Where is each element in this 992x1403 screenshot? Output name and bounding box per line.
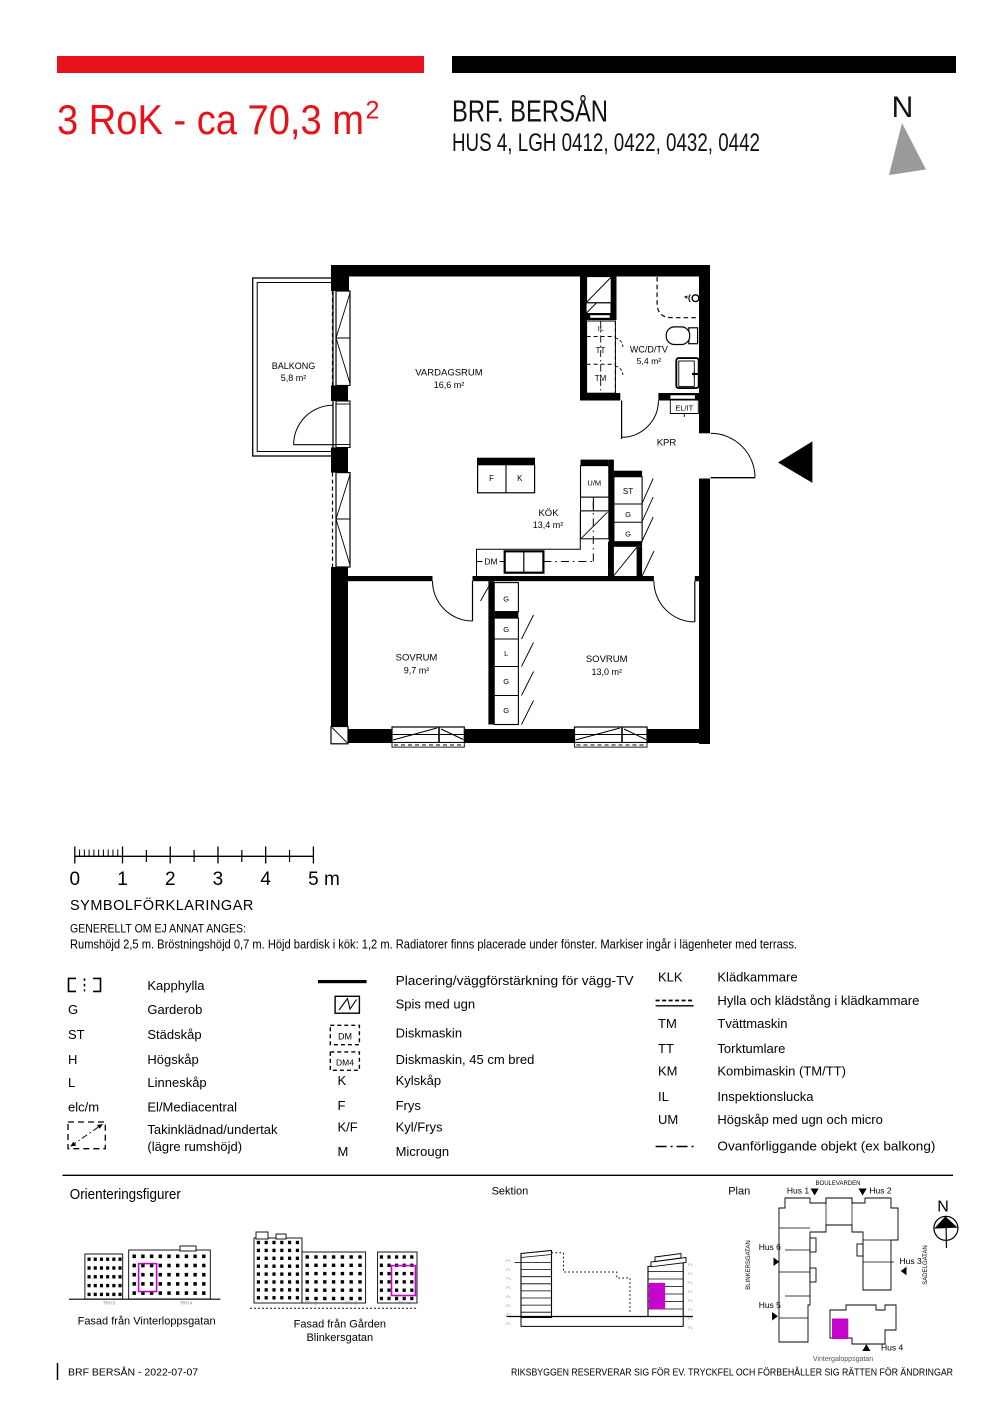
svg-text:ST: ST [623, 487, 633, 496]
svg-text:BOULEVARDEN: BOULEVARDEN [816, 1181, 861, 1187]
svg-text:IL: IL [658, 1089, 669, 1104]
svg-text:PL.: PL. [688, 1307, 694, 1312]
svg-text:PL.: PL. [688, 1289, 694, 1294]
svg-text:KÖK: KÖK [538, 508, 559, 519]
svg-text:m: m [324, 869, 340, 890]
svg-text:4: 4 [260, 869, 271, 890]
svg-text:L: L [68, 1075, 75, 1090]
svg-text:Inspektionslucka: Inspektionslucka [717, 1089, 814, 1104]
svg-text:KLK: KLK [658, 969, 683, 984]
svg-text:Diskmaskin, 45 cm bred: Diskmaskin, 45 cm bred [396, 1052, 535, 1067]
svg-text:TRH 4: TRH 4 [180, 1301, 193, 1306]
svg-text:Placering/väggförstärkning för: Placering/väggförstärkning för vägg-TV [396, 973, 634, 988]
svg-text:El/Mediacentral: El/Mediacentral [147, 1099, 237, 1114]
svg-text:Klädkammare: Klädkammare [717, 969, 797, 984]
svg-text:Microugn: Microugn [396, 1144, 449, 1159]
svg-text:ST: ST [68, 1027, 85, 1042]
svg-text:U/M: U/M [587, 479, 601, 488]
svg-text:Hus 4: Hus 4 [881, 1343, 903, 1353]
svg-text:N: N [892, 91, 914, 124]
svg-text:TRH 5: TRH 5 [103, 1301, 116, 1306]
svg-text:PL.: PL. [688, 1325, 694, 1330]
svg-text:Högskåp: Högskåp [147, 1052, 198, 1067]
svg-text:PL.: PL. [506, 1303, 512, 1308]
svg-text:TT: TT [596, 346, 606, 355]
svg-text:H: H [68, 1052, 77, 1067]
svg-text:Torktumlare: Torktumlare [717, 1041, 785, 1056]
svg-text:TM: TM [595, 374, 607, 383]
svg-text:G: G [503, 677, 509, 686]
svg-text:Linneskåp: Linneskåp [147, 1075, 206, 1090]
svg-text:EL/IT: EL/IT [675, 404, 693, 413]
svg-text:UM: UM [658, 1112, 678, 1127]
svg-text:Kapphylla: Kapphylla [147, 978, 205, 993]
svg-text:PL.: PL. [688, 1280, 694, 1285]
svg-text:Tvättmaskin: Tvättmaskin [717, 1016, 787, 1031]
svg-text:DM: DM [484, 557, 497, 567]
svg-text:Hus 2: Hus 2 [869, 1186, 891, 1196]
svg-text:2: 2 [165, 869, 176, 890]
svg-text:BRF BERSÅN - 2022-07-07: BRF BERSÅN - 2022-07-07 [68, 1366, 198, 1379]
svg-text:GENERELLT OM EJ ANNAT ANGES:: GENERELLT OM EJ ANNAT ANGES: [70, 922, 246, 936]
svg-text:Diskmaskin: Diskmaskin [396, 1025, 462, 1040]
svg-text:Ovanförliggande objekt (ex ba: Ovanförliggande objekt (ex balkong) [717, 1139, 935, 1154]
svg-text:PL.: PL. [506, 1276, 512, 1281]
svg-text:PL.: PL. [506, 1285, 512, 1290]
svg-text:DM4: DM4 [336, 1058, 354, 1068]
svg-text:N: N [937, 1199, 949, 1216]
svg-text:G: G [625, 530, 631, 539]
svg-text:elc/m: elc/m [68, 1099, 99, 1114]
svg-text:Vintergaloppsgatan: Vintergaloppsgatan [813, 1356, 873, 1363]
svg-text:1: 1 [117, 869, 128, 890]
svg-text:Hus 5: Hus 5 [759, 1300, 781, 1310]
svg-text:K/F: K/F [338, 1120, 358, 1135]
svg-text:SADELGATAN: SADELGATAN [923, 1245, 929, 1284]
svg-text:16,6 m²: 16,6 m² [434, 380, 465, 390]
svg-text:13,0 m²: 13,0 m² [591, 667, 622, 677]
svg-text:Plan: Plan [728, 1186, 750, 1198]
svg-text:BRF. BERSÅN: BRF. BERSÅN [452, 94, 608, 129]
svg-text:TRH 3: TRH 3 [345, 1301, 358, 1306]
svg-text:KPR: KPR [657, 438, 677, 449]
svg-text:PL.: PL. [506, 1294, 512, 1299]
svg-text:TRH 2: TRH 2 [305, 1301, 318, 1306]
svg-text:HUS 4, LGH 0412, 0422, 0432, 0: HUS 4, LGH 0412, 0422, 0432, 0442 [452, 129, 760, 157]
svg-text:PL.: PL. [506, 1258, 512, 1263]
svg-text:PL.: PL. [506, 1321, 512, 1326]
svg-text:Hus 3: Hus 3 [899, 1256, 921, 1266]
svg-text:5: 5 [308, 869, 319, 890]
svg-text:KM: KM [658, 1064, 678, 1079]
svg-text:TT: TT [658, 1041, 674, 1056]
svg-text:WC/D/TV: WC/D/TV [630, 345, 668, 355]
svg-text:TM: TM [658, 1016, 677, 1031]
svg-text:Fasad från Gården: Fasad från Gården [294, 1319, 386, 1331]
svg-text:Städskåp: Städskåp [147, 1027, 201, 1042]
svg-text:5,4 m²: 5,4 m² [637, 356, 662, 366]
svg-text:PL.: PL. [688, 1298, 694, 1303]
svg-text:Kyl/Frys: Kyl/Frys [396, 1120, 443, 1135]
svg-text:Högskåp med ugn och micro: Högskåp med ugn och micro [717, 1112, 882, 1127]
svg-text:G: G [503, 595, 509, 604]
svg-text:Blinkersgatan: Blinkersgatan [306, 1332, 373, 1344]
svg-text:5,8 m²: 5,8 m² [281, 373, 307, 383]
svg-text:Takinklädnad/undertak: Takinklädnad/undertak [147, 1122, 278, 1137]
svg-text:PL.: PL. [688, 1271, 694, 1276]
svg-text:Kombimaskin (TM/TT): Kombimaskin (TM/TT) [717, 1064, 846, 1079]
svg-text:BALKONG: BALKONG [272, 361, 316, 371]
svg-text:IL: IL [598, 324, 604, 333]
svg-text:Sektion: Sektion [492, 1186, 529, 1198]
svg-text:13,4 m²: 13,4 m² [533, 520, 564, 530]
svg-text:F: F [338, 1098, 346, 1113]
svg-text:3: 3 [213, 869, 224, 890]
svg-text:Frys: Frys [396, 1098, 422, 1113]
svg-text:PL.: PL. [688, 1262, 694, 1267]
svg-text:Hylla och klädstång i klädkamm: Hylla och klädstång i klädkammare [717, 993, 919, 1008]
svg-text:L: L [504, 649, 508, 658]
svg-text:VARDAGSRUM: VARDAGSRUM [415, 368, 482, 379]
svg-text:Kylskåp: Kylskåp [396, 1073, 442, 1088]
svg-text:TRH 4: TRH 4 [398, 1301, 411, 1306]
svg-text:PL.: PL. [506, 1312, 512, 1317]
svg-text:Spis med ugn: Spis med ugn [396, 996, 476, 1011]
svg-text:G: G [625, 510, 631, 519]
svg-text:Garderob: Garderob [147, 1002, 202, 1017]
svg-text:BLINKERSGATAN: BLINKERSGATAN [746, 1240, 752, 1289]
svg-text:SYMBOLFÖRKLARINGAR: SYMBOLFÖRKLARINGAR [70, 896, 254, 914]
svg-text:K: K [338, 1073, 347, 1088]
svg-text:Orienteringsfigurer: Orienteringsfigurer [70, 1187, 181, 1203]
svg-text:9,7 m²: 9,7 m² [404, 666, 430, 676]
svg-text:2: 2 [366, 97, 380, 125]
svg-text:PL.: PL. [506, 1267, 512, 1272]
svg-text:Fasad från Vinterloppsgatan: Fasad från Vinterloppsgatan [78, 1316, 216, 1328]
svg-text:Hus 6: Hus 6 [759, 1242, 781, 1252]
svg-text:SOVRUM: SOVRUM [396, 653, 438, 664]
svg-text:Hus 1: Hus 1 [787, 1186, 809, 1196]
svg-text:3 RoK - ca 70,3 m: 3 RoK - ca 70,3 m [57, 96, 364, 143]
svg-text:F: F [489, 474, 494, 483]
svg-text:RIKSBYGGEN RESERVERAR SIG FÖR: RIKSBYGGEN RESERVERAR SIG FÖR EV. TRYCKF… [511, 1366, 953, 1379]
svg-text:PL.: PL. [688, 1316, 694, 1321]
svg-text:G: G [68, 1002, 78, 1017]
svg-text:Rumshöjd 2,5 m. Bröstningshöjd: Rumshöjd 2,5 m. Bröstningshöjd 0,7 m. Hö… [70, 938, 797, 952]
svg-text:DM: DM [338, 1032, 352, 1042]
svg-text:(lägre rumshöjd): (lägre rumshöjd) [147, 1139, 242, 1154]
svg-text:G: G [503, 706, 509, 715]
svg-text:G: G [503, 625, 509, 634]
svg-text:K: K [517, 474, 523, 483]
svg-text:M: M [338, 1144, 349, 1159]
svg-text:0: 0 [70, 869, 81, 890]
svg-text:SOVRUM: SOVRUM [586, 654, 628, 665]
